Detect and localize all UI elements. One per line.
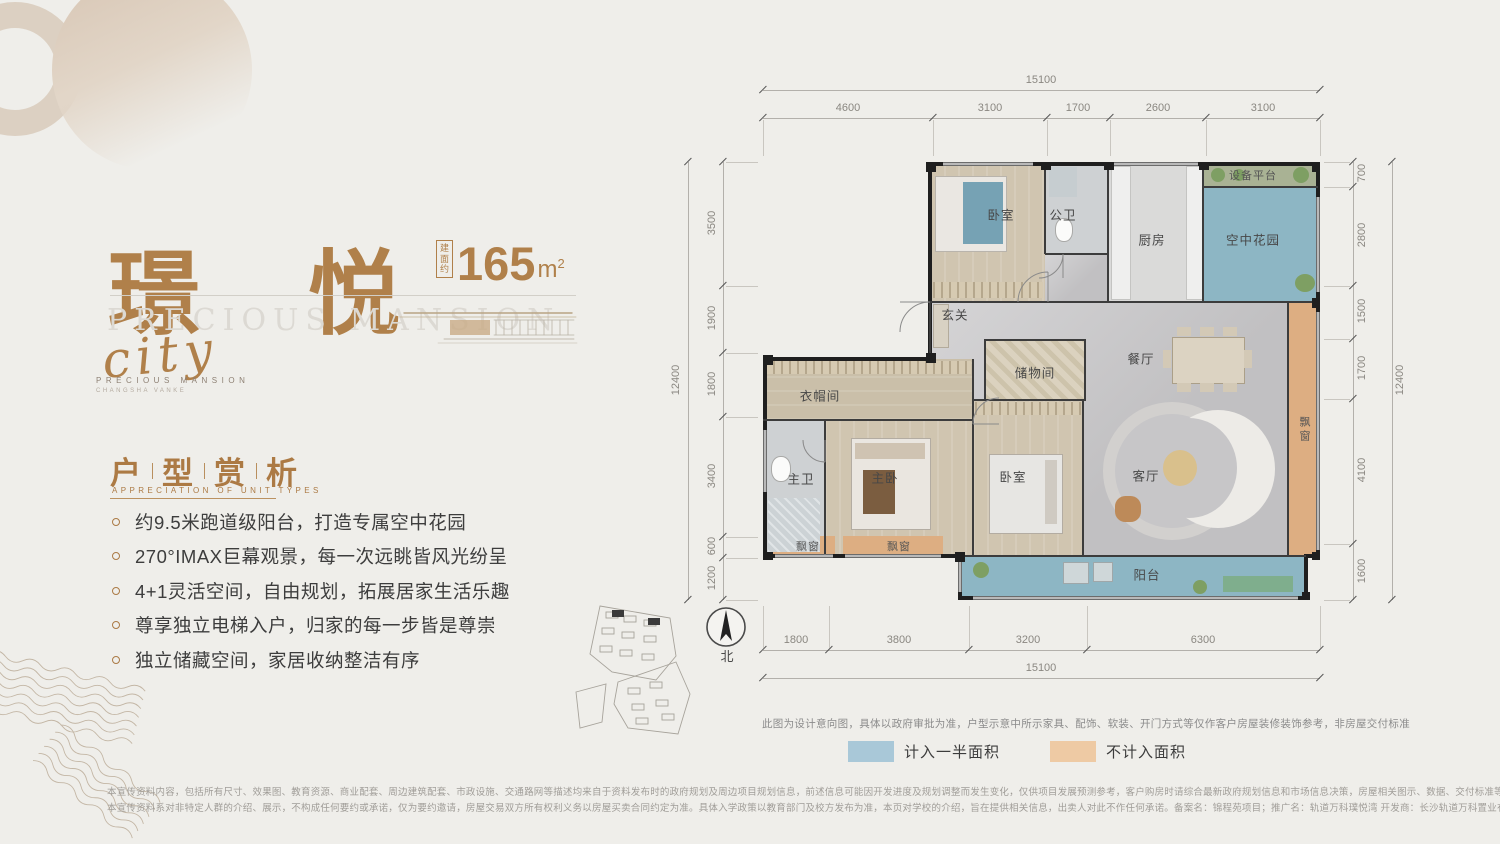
dim-right: 2800 [1356,213,1368,257]
list-item: 独立储藏空间，家居收纳整洁有序 [112,650,510,669]
room-label-bay1: 飘窗 [796,538,820,554]
footer-disclaimer-line2: 本宣传资料系对非特定人群的介绍、展示，不构成任何要约或承诺，仅为要约邀请，房屋交… [107,800,1417,814]
list-item: 4+1灵活空间，自由规划，拓展居家生活乐趣 [112,581,510,600]
dim-right: 4100 [1356,448,1368,492]
room-label-bedroom2: 卧室 [999,467,1026,486]
dim-right: 1500 [1356,289,1368,333]
room-label-dining: 餐厅 [1127,349,1154,368]
room-label-foyer: 玄关 [941,305,968,324]
legend-label-half-area: 计入一半面积 [904,741,1000,762]
list-item: 约9.5米跑道级阳台，打造专属空中花园 [112,512,510,531]
list-item: 270°IMAX巨幕观景，每一次远眺皆风光纷呈 [112,547,510,566]
room-label-cloakroom: 衣帽间 [800,386,841,405]
bullet-ring-icon [112,518,120,526]
dim-bottom: 3200 [998,634,1058,646]
room-label-sky-garden: 空中花园 [1226,230,1280,249]
dim-right: 700 [1356,151,1368,195]
section-underline [110,498,276,499]
room-label-living: 客厅 [1132,466,1159,485]
brand-divider [110,295,576,296]
legend-swatch-excluded [1050,741,1096,762]
dim-right-total: 12400 [1394,358,1406,402]
room-label-kitchen: 厨房 [1138,230,1165,249]
bullet-ring-icon [112,656,120,664]
bullet-ring-icon [112,552,120,560]
dim-top: 4600 [818,102,878,114]
dim-left: 1800 [706,362,718,406]
room-label-equipment: 设备平台 [1229,167,1277,183]
legend-swatch-half-area [848,741,894,762]
dim-right: 1700 [1356,346,1368,390]
dim-left: 3500 [706,201,718,245]
plan-disclaimer: 此图为设计意向图，具体以政府审批为准，户型示意中所示家具、配饰、软装、开门方式等… [762,716,1422,731]
room-label-public-bath: 公卫 [1049,205,1076,224]
dim-top: 2600 [1128,102,1188,114]
section-subtitle: APPRECIATION OF UNIT TYPES [112,486,322,495]
list-item: 尊享独立电梯入户，归家的每一步皆是尊崇 [112,616,510,635]
dim-left: 3400 [706,454,718,498]
area-legend: 计入一半面积 不计入面积 [848,741,1236,762]
dim-left: 1200 [706,556,718,600]
dim-bottom: 3800 [869,634,929,646]
corner-circle-decoration [52,0,252,170]
room-label-bedroom: 卧室 [987,205,1014,224]
compass-north-label: 北 [709,646,745,665]
dim-top: 3100 [960,102,1020,114]
legend-label-excluded: 不计入面积 [1106,741,1186,762]
bullet-ring-icon [112,621,120,629]
area-value: 165 [457,244,535,284]
room-label-master-bath: 主卫 [787,469,814,488]
dim-top-total: 15100 [1011,74,1071,86]
room-label-bay2: 飘窗 [887,538,911,554]
dim-bottom-total: 15100 [1011,662,1071,674]
dim-right: 1600 [1356,549,1368,593]
area-unit: m2 [537,257,564,283]
floor-plan: 卧室 公卫 厨房 空中花园 设备平台 玄关 储物间 餐厅 衣帽间 主卫 主卧 卧… [763,162,1320,600]
building-sketch [398,300,580,348]
room-label-master-bedroom: 主卧 [871,468,898,487]
dim-bottom: 1800 [766,634,826,646]
sub-brand-line: PRECIOUS MANSION [96,376,249,385]
room-label-bay-right: 飘窗 [1296,416,1312,444]
dim-bottom: 6300 [1173,634,1233,646]
dim-left: 1900 [706,296,718,340]
site-plan-sketch [572,596,712,778]
sub-brand-line2: CHANGSHA VANKE [96,388,186,394]
dim-left-total: 12400 [670,358,682,402]
dim-top: 3100 [1233,102,1293,114]
room-label-balcony: 阳台 [1133,565,1160,584]
area-badge: 建 面 约 165 m2 [436,240,565,284]
area-prefix-box: 建 面 约 [436,240,453,278]
dim-top: 1700 [1048,102,1108,114]
room-label-storage: 储物间 [1015,363,1056,382]
footer-disclaimer-line1: 本宣传资料内容，包括所有尺寸、效果图、教育资源、商业配套、周边建筑配套、市政设施… [107,784,1417,798]
selling-points-list: 约9.5米跑道级阳台，打造专属空中花园 270°IMAX巨幕观景，每一次远眺皆风… [112,512,510,685]
bullet-ring-icon [112,587,120,595]
